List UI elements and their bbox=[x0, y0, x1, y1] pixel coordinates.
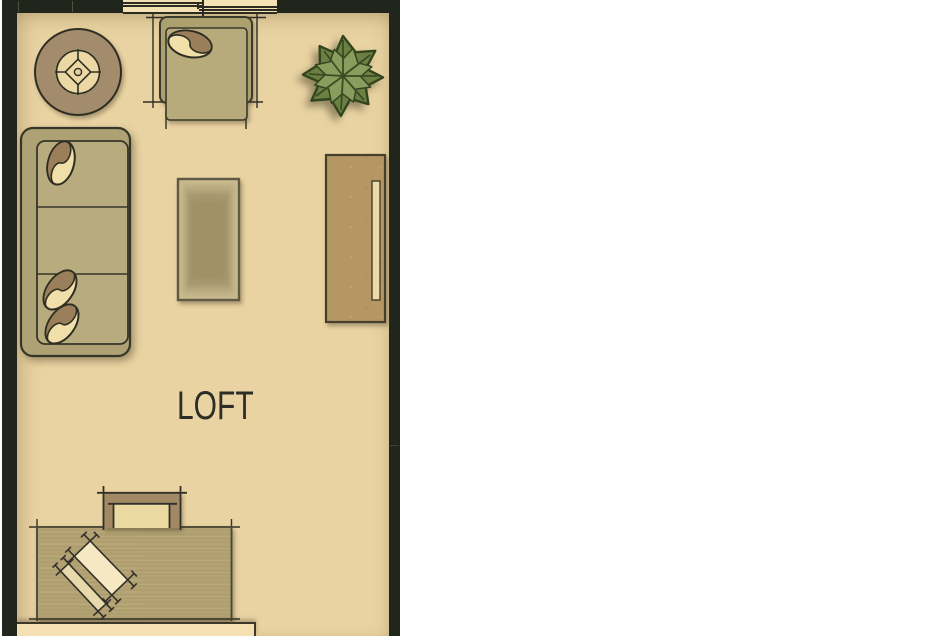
potted-plant[interactable] bbox=[303, 36, 383, 116]
furniture-layer bbox=[0, 0, 400, 636]
sideboard-slot bbox=[372, 181, 380, 300]
sofa[interactable] bbox=[21, 128, 130, 356]
round-side-table[interactable] bbox=[35, 29, 121, 115]
sideboard[interactable] bbox=[326, 155, 385, 322]
room-label: LOFT bbox=[177, 384, 254, 428]
floor-plan: LOFT bbox=[0, 0, 400, 636]
armchair[interactable] bbox=[143, 12, 266, 129]
ledge bbox=[17, 622, 256, 636]
desk-chair[interactable] bbox=[97, 486, 187, 530]
screenshot-canvas: LOFT bbox=[0, 0, 929, 636]
coffee-table[interactable] bbox=[178, 179, 239, 300]
